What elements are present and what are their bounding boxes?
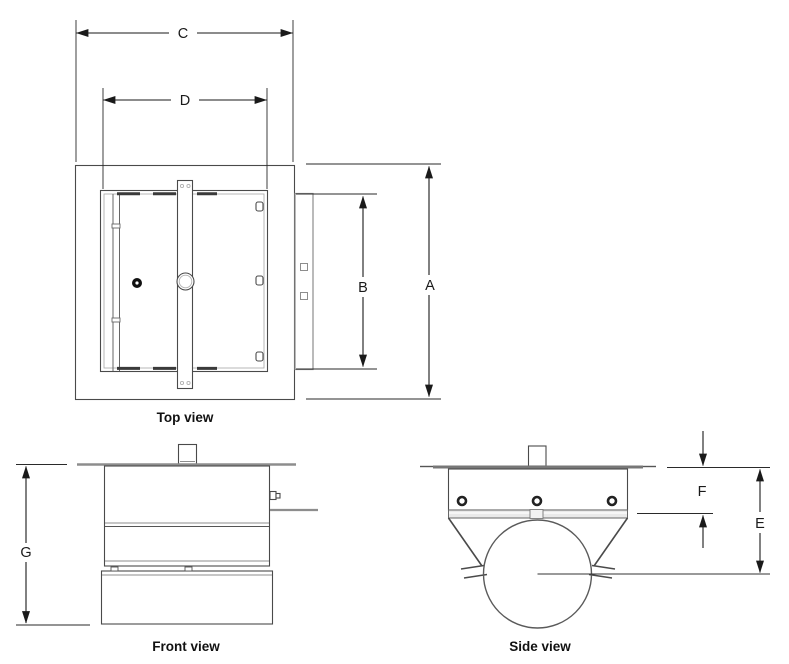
base-tab — [185, 567, 192, 571]
body — [105, 466, 270, 566]
hinge-tick — [112, 224, 120, 228]
front-view-label: Front view — [152, 639, 220, 654]
front-view-drawing — [77, 445, 318, 625]
side-view-drawing — [420, 446, 770, 628]
bolt-head — [533, 497, 541, 505]
bolt-head — [458, 497, 466, 505]
side-view: F E Side view — [420, 431, 770, 654]
dim-label-D: D — [180, 93, 190, 109]
side-view-label: Side view — [509, 639, 571, 654]
funnel-side — [449, 518, 483, 566]
top-view: C D B A Top view — [76, 20, 442, 425]
base-box — [102, 571, 273, 624]
clamp-tick — [589, 575, 612, 579]
dimension-drawing-page: C D B A Top view — [0, 0, 789, 664]
side-fitting-nut — [276, 494, 280, 499]
dim-label-F: F — [698, 484, 707, 500]
bolt-head — [608, 497, 616, 505]
hinge-clip — [256, 202, 263, 211]
dimension-F: F — [637, 431, 770, 548]
side-flange — [295, 194, 313, 370]
top-stub — [529, 446, 547, 466]
dim-label-E: E — [755, 516, 765, 532]
dimension-A: A — [306, 164, 441, 399]
dimension-C: C — [76, 20, 293, 162]
technical-drawing: C D B A Top view — [0, 0, 789, 664]
clamp-tick — [461, 566, 484, 570]
hinge-clip — [256, 276, 263, 285]
hinge-clip — [256, 352, 263, 361]
dim-label-C: C — [178, 26, 188, 42]
clamp-tick — [592, 566, 615, 570]
top-view-label: Top view — [157, 410, 214, 425]
dim-label-A: A — [425, 278, 435, 294]
track-latch — [530, 510, 543, 519]
funnel-side — [594, 518, 628, 566]
hinge-tick — [112, 318, 120, 322]
dim-label-G: G — [20, 545, 31, 561]
blade-bolt-center — [135, 281, 138, 284]
front-view: G Front view — [16, 445, 318, 655]
dim-label-B: B — [358, 280, 368, 296]
top-view-drawing — [76, 166, 314, 400]
dimension-E: E — [755, 470, 765, 573]
base-tab — [111, 567, 118, 571]
dimension-G: G — [16, 465, 90, 626]
side-fitting — [270, 492, 276, 500]
